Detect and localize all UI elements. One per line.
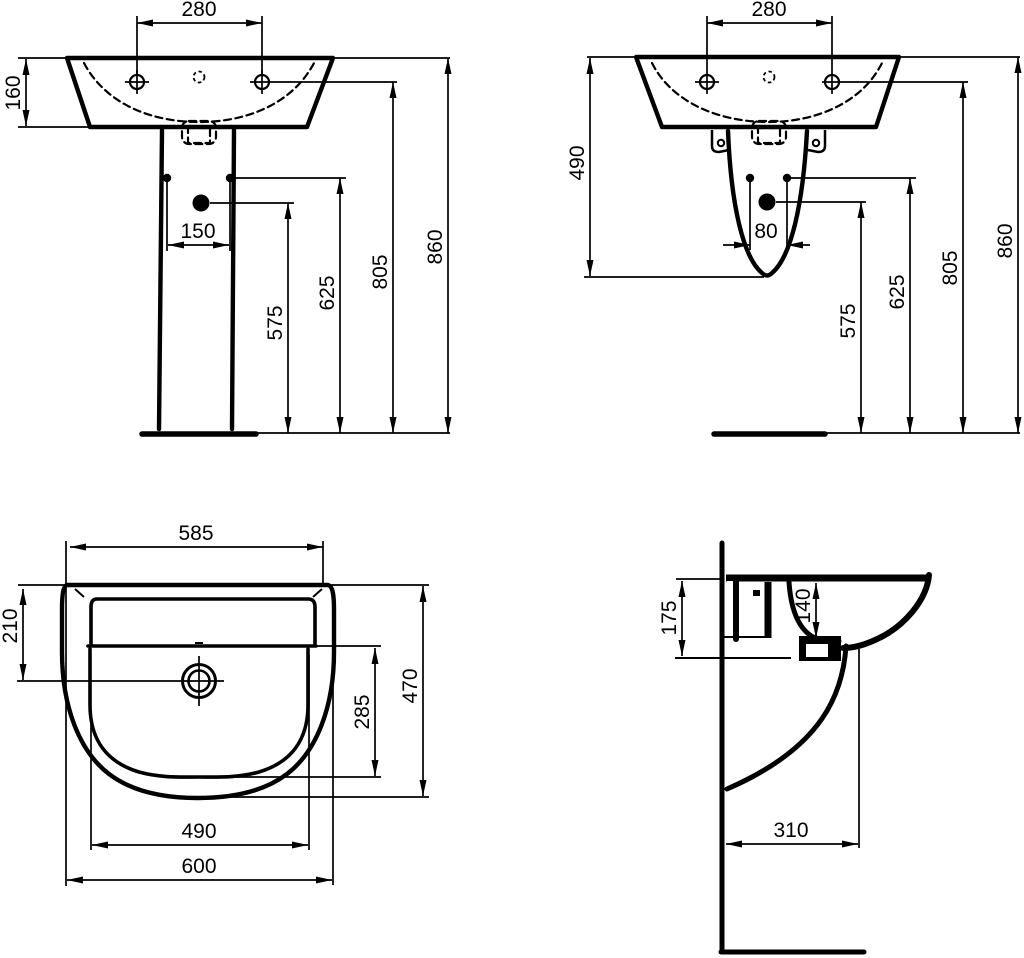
dim-label-575: 575 [264, 305, 287, 340]
waste-outlet-point [193, 195, 210, 212]
dim-label-585: 585 [178, 522, 213, 545]
fixing-point-left [746, 174, 754, 182]
dim-tap-spacing: 280 [137, 0, 262, 75]
overflow-trap-hidden [752, 121, 786, 144]
dim-label-860: 860 [994, 223, 1017, 258]
dim-label-280: 280 [751, 0, 786, 21]
dim-label-280: 280 [181, 0, 216, 21]
bowl-hidden-edge [652, 63, 882, 122]
dim-label-805: 805 [939, 250, 962, 285]
dim-label-210: 210 [0, 608, 22, 643]
dim-label-175: 175 [658, 600, 681, 635]
bracket-bolt-section [753, 590, 760, 596]
fixing-point-left [163, 174, 171, 182]
dim-bowl-length: 285 [201, 646, 381, 777]
dim-rim-total-height: 860 [994, 57, 1018, 433]
view-front-pedestal: 280 160 150 575 625 805 860 [2, 0, 450, 434]
dim-label-575: 575 [837, 303, 860, 338]
dim-label-860: 860 [424, 229, 447, 264]
dim-bowl-width: 490 [91, 655, 309, 850]
dim-outlet-setback: 210 [0, 589, 23, 680]
dim-label-600: 600 [181, 855, 216, 878]
technical-drawing-canvas: 280 160 150 575 625 805 860 [0, 0, 1024, 958]
rim-corner-chamfer-left [75, 589, 84, 597]
dim-fixing-height: 625 [886, 178, 910, 433]
dim-tap-spacing: 280 [707, 0, 832, 70]
overflow-trap-hidden [182, 121, 216, 144]
dim-label-490: 490 [566, 145, 589, 180]
dim-label-80: 80 [754, 220, 777, 243]
dim-label-625: 625 [316, 275, 339, 310]
fixing-point-right [783, 174, 791, 182]
semi-pedestal-profile [727, 646, 846, 789]
dim-label-490: 490 [181, 820, 216, 843]
dim-fixing-width: 150 [168, 220, 229, 245]
view-plan: 585 210 285 470 490 600 [0, 522, 429, 886]
dim-label-805: 805 [369, 254, 392, 289]
fixing-point-right [226, 174, 234, 182]
dim-outlet-height: 575 [264, 203, 288, 433]
dim-wall-fixing-height: 175 [658, 579, 723, 656]
dim-label-470: 470 [399, 668, 422, 703]
dim-outlet-height: 575 [837, 202, 861, 433]
dim-rim-height: 160 [2, 59, 26, 126]
center-tap-hole-hidden [764, 72, 775, 83]
pedestal-outline [159, 130, 234, 429]
dim-overall-width: 600 [67, 674, 333, 885]
dim-rim-total-height: 860 [424, 58, 448, 433]
dim-tap-height: 805 [369, 82, 393, 433]
waste-outlet-symbol [17, 656, 224, 706]
center-tap-hole-hidden [194, 72, 205, 83]
dim-label-310: 310 [773, 819, 808, 842]
dim-rim-width: 585 [70, 522, 323, 587]
waste-outlet-point [759, 194, 776, 211]
view-side: 175 140 310 [658, 543, 929, 952]
dim-label-150: 150 [180, 220, 215, 243]
wall-bracket-right [808, 130, 825, 152]
rim-deck-inner-edge [91, 599, 315, 644]
dim-label-625: 625 [886, 274, 909, 309]
view-front-semi-pedestal: 280 490 80 575 625 805 860 [566, 0, 1020, 434]
dim-label-285: 285 [351, 694, 374, 729]
rim-corner-chamfer-right [313, 589, 322, 597]
dim-fixing-height: 625 [316, 178, 340, 433]
dim-label-160: 160 [2, 75, 25, 110]
dim-label-140: 140 [792, 588, 815, 623]
drawing-page: 280 160 150 575 625 805 860 [0, 0, 1024, 958]
dim-tap-height: 805 [939, 82, 963, 433]
tap-hole-left [695, 70, 719, 94]
